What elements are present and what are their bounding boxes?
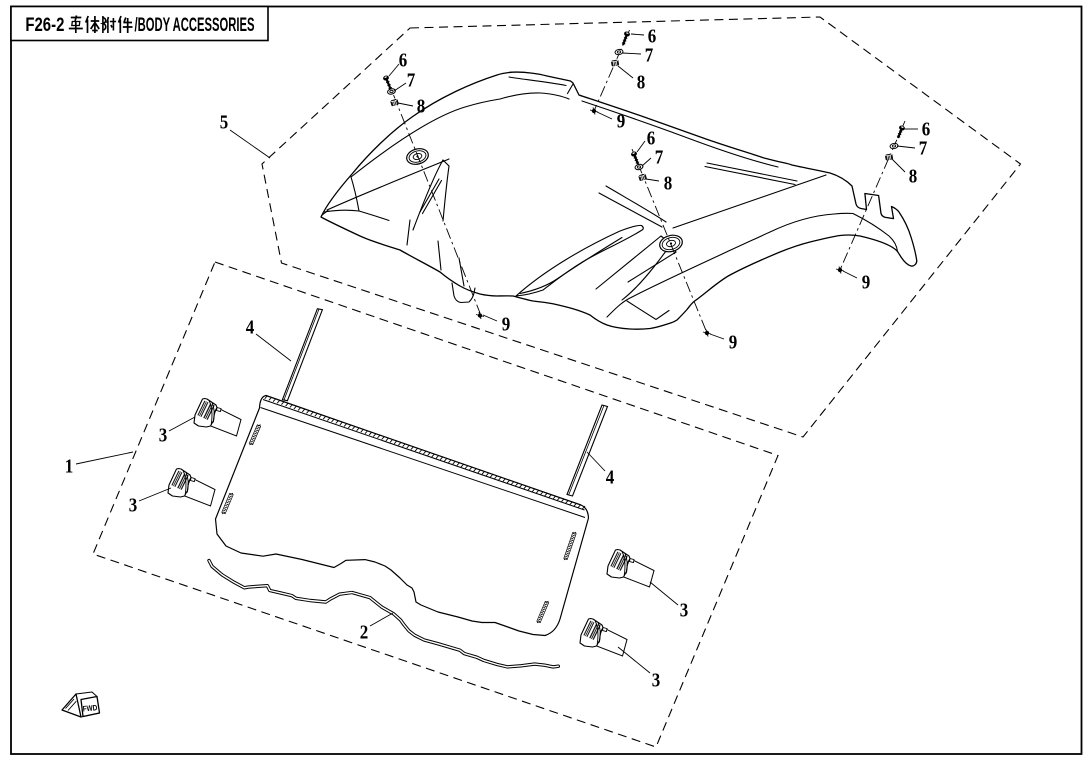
svg-text:3: 3 [652,670,661,692]
svg-text:4: 4 [246,317,255,339]
svg-text:6: 6 [399,50,408,72]
svg-text:5: 5 [220,112,229,134]
svg-text:3: 3 [680,600,689,622]
svg-text:8: 8 [417,96,426,118]
svg-text:7: 7 [655,147,664,169]
svg-text:7: 7 [919,138,928,160]
svg-text:F26-2: F26-2 [25,14,64,36]
svg-text:9: 9 [617,111,626,133]
svg-text:8: 8 [637,72,646,94]
svg-text:1: 1 [65,456,74,478]
svg-text:FWD: FWD [82,703,97,713]
svg-text:9: 9 [502,314,511,336]
svg-text:9: 9 [862,272,871,294]
svg-text:8: 8 [664,173,673,195]
svg-text:7: 7 [645,45,654,67]
svg-text:3: 3 [159,425,168,447]
svg-text:/BODY ACCESSORIES: /BODY ACCESSORIES [135,14,255,36]
svg-text:4: 4 [606,467,615,489]
svg-text:7: 7 [407,70,416,92]
svg-text:2: 2 [360,622,369,644]
svg-text:3: 3 [129,495,138,517]
svg-text:9: 9 [729,332,738,354]
svg-text:8: 8 [909,166,918,188]
